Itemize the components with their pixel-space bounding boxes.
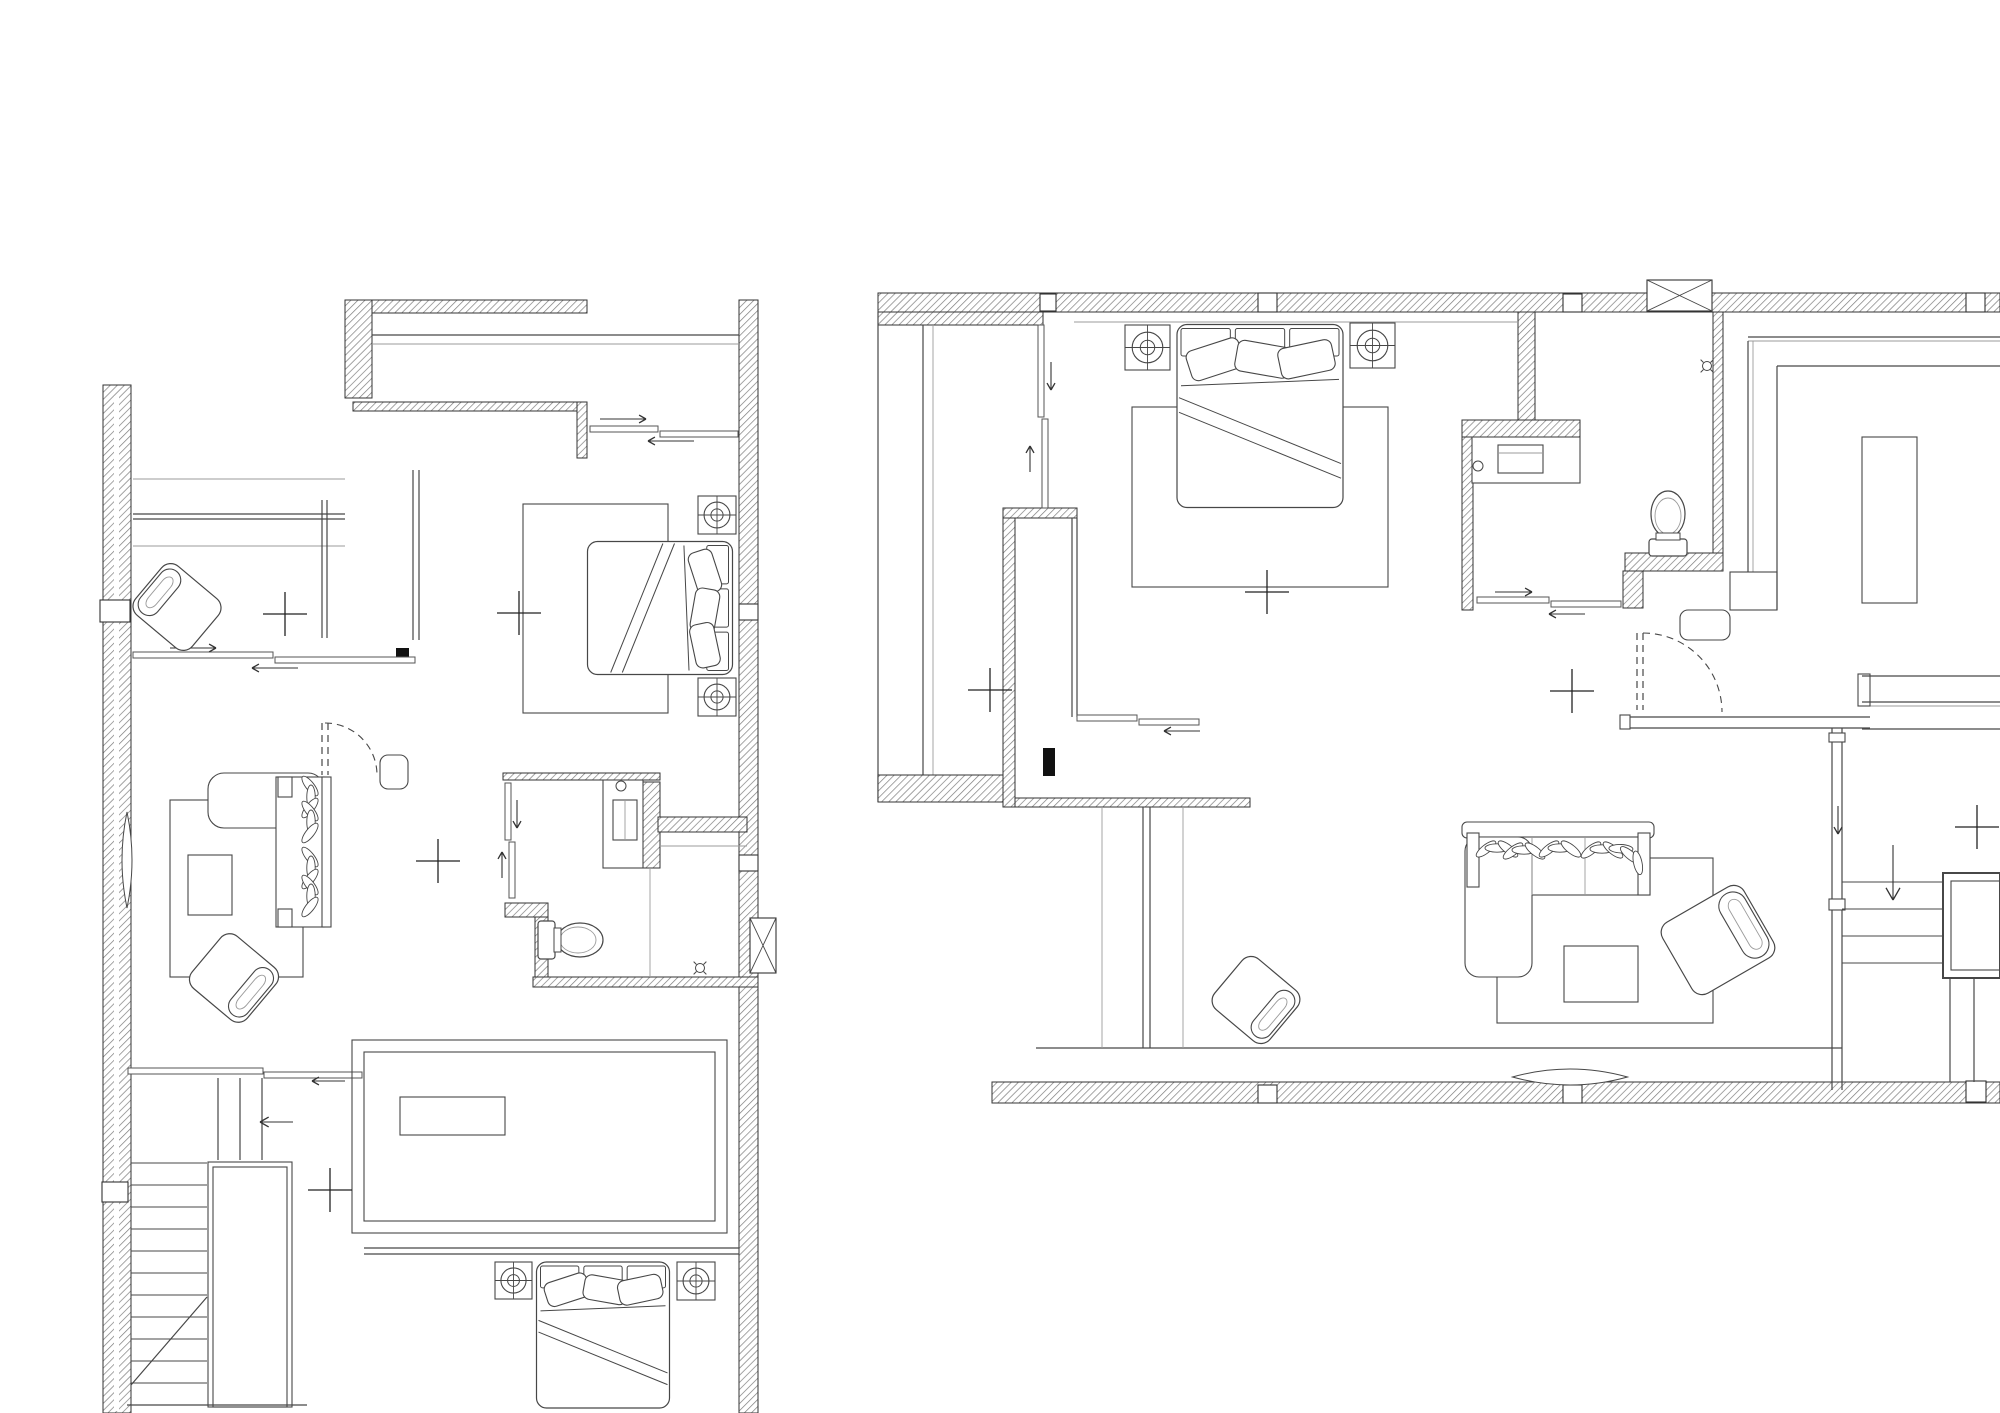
stair-direction-arrow [1893, 888, 1900, 900]
column-break [1966, 1081, 1986, 1102]
column-break [739, 604, 758, 620]
door-direction-arrow [1549, 610, 1556, 614]
toilet-tank [538, 921, 555, 959]
left-unit-floor-plan [100, 300, 776, 1413]
shower-head [1703, 362, 1712, 371]
stair-break-line [131, 1297, 207, 1385]
door-direction-arrow [1164, 727, 1171, 731]
door-direction-arrow [502, 852, 506, 859]
bathroom-mid-wall [642, 782, 660, 868]
stair-direction-arrow [1838, 827, 1842, 834]
double-bed [537, 1262, 670, 1408]
door-direction-arrow [1026, 446, 1030, 453]
door-direction-arrow [513, 821, 517, 828]
sliding-door-panel [509, 842, 515, 898]
column-break [1966, 293, 1985, 312]
double-bed [1177, 325, 1343, 508]
stair-direction-arrow [1834, 827, 1838, 834]
sliding-door-panel [264, 1072, 362, 1078]
wall-stub [1043, 748, 1055, 776]
bathroom-wall-column [1518, 312, 1535, 420]
door-direction-arrow [498, 852, 502, 859]
column-break [1040, 294, 1056, 311]
toilet-base [1656, 533, 1680, 540]
speaker-symbol [1125, 325, 1170, 370]
closet-wall [1003, 508, 1015, 807]
bathroom-wall-right [1713, 312, 1723, 555]
speaker-symbol [698, 496, 736, 534]
door-direction-arrow [1164, 731, 1171, 735]
door-mat [1680, 610, 1730, 640]
counter-cap [1858, 674, 1870, 706]
duct-shaft [750, 918, 776, 973]
door-direction-arrow [1525, 588, 1532, 592]
floor-drain [694, 972, 697, 975]
hall-wall [1015, 798, 1250, 807]
stairwell-inner [213, 1167, 287, 1407]
door-direction-arrow [648, 441, 655, 445]
door-direction-arrow [1051, 383, 1055, 390]
coffee-table [188, 855, 232, 915]
toilet-tank [1649, 539, 1687, 556]
sliding-door-panel [1038, 325, 1044, 417]
bathroom-bottom-wall [533, 977, 758, 987]
door-direction-arrow [648, 437, 655, 441]
door-direction-arrow [252, 664, 259, 668]
door-direction-arrow [1030, 446, 1034, 453]
lounge-chair [1207, 952, 1305, 1049]
sliding-door-panel [1139, 719, 1199, 725]
door-direction-arrow [1525, 592, 1532, 596]
column-break [739, 855, 758, 871]
floor-drain [696, 964, 705, 973]
floor-plan-document [0, 0, 2000, 1413]
door-swing-arc [325, 723, 377, 775]
top-exterior-wall [345, 300, 587, 313]
partition-joint [1829, 899, 1845, 910]
door-direction-arrow [1549, 614, 1556, 618]
speaker-symbol [698, 678, 736, 716]
door-direction-arrow [517, 821, 521, 828]
sofa-back [1462, 822, 1654, 838]
floor-drain [694, 962, 697, 965]
sliding-door-panel [128, 1068, 263, 1074]
shower-head [1701, 360, 1704, 363]
sliding-door-panel [1077, 715, 1137, 721]
step-notch [1620, 715, 1630, 729]
floor-drain [694, 962, 707, 975]
sofa-armrest [1467, 833, 1479, 887]
bathroom-top-wall [503, 773, 660, 780]
bathroom-wall-stub [1623, 571, 1643, 608]
door-direction-arrow [209, 648, 216, 652]
entry-wall-column [345, 300, 372, 398]
faucet [1473, 461, 1483, 471]
bathroom-right-wall [658, 817, 747, 832]
speaker-symbol [495, 1262, 532, 1299]
bedroom-partition-wall [353, 402, 578, 411]
door-direction-arrow [1047, 383, 1051, 390]
toilet [1649, 491, 1687, 556]
shower-head [1701, 370, 1704, 373]
closet-wall-cap [1003, 508, 1077, 518]
sofa-armrest [278, 909, 292, 927]
door-swing-arc [1643, 633, 1722, 712]
armchair [1657, 881, 1779, 999]
faucet [616, 781, 626, 791]
stair-direction-arrow [260, 1117, 269, 1122]
stair-direction-arrow [260, 1122, 269, 1127]
column-break [1563, 1085, 1582, 1103]
wall-cavity [114, 396, 119, 1411]
toilet-base [554, 928, 561, 952]
platform-rug-inner [364, 1052, 715, 1221]
sliding-door-panel [275, 657, 415, 663]
coffee-table [1564, 946, 1638, 1002]
bedroom-wall-cap [577, 402, 587, 458]
sofa-back [322, 777, 331, 927]
bathroom-wall-h [1462, 420, 1580, 437]
column-break [1563, 294, 1582, 312]
double-bed [588, 542, 733, 675]
floor-drain [704, 962, 707, 965]
toilet-nook-wall-h [505, 903, 548, 917]
bathroom-wall-left [1462, 437, 1473, 610]
sliding-door-panel [1477, 597, 1549, 603]
sliding-door-panel [1551, 601, 1621, 607]
door-direction-arrow [639, 415, 646, 419]
floor-plan-canvas [0, 0, 2000, 1413]
shower-head [1701, 360, 1714, 373]
lounge-chair [128, 559, 226, 656]
door-direction-arrow [252, 668, 259, 672]
door-direction-arrow [209, 644, 216, 648]
top-wall-thick [878, 312, 1043, 325]
kitchen-island [1862, 437, 1917, 603]
duct-shaft [1647, 280, 1712, 311]
speaker-symbol [1350, 323, 1395, 368]
toilet [538, 921, 603, 959]
sliding-door-panel [133, 652, 273, 658]
sliding-door-panel [590, 426, 658, 432]
column-break [102, 1182, 128, 1202]
step-block [1730, 572, 1777, 610]
lounge-chair [185, 929, 284, 1027]
sliding-door-panel [505, 783, 511, 840]
sofa-armrest [278, 777, 292, 797]
column-break [100, 600, 130, 622]
partition-joint [1829, 733, 1845, 742]
sliding-door-panel [660, 431, 738, 437]
bottom-exterior-wall [992, 1082, 2000, 1103]
vanity-counter [1472, 437, 1580, 483]
right-unit-floor-plan [878, 280, 2000, 1103]
door-direction-arrow [312, 1081, 319, 1085]
speaker-symbol [677, 1262, 715, 1300]
sliding-door-panel [1042, 419, 1048, 508]
column-break [1258, 293, 1277, 312]
left-wall-block [878, 775, 1003, 802]
stair-direction-arrow [1886, 888, 1893, 900]
stairwell [208, 1162, 292, 1407]
platform-rug [352, 1040, 727, 1233]
fireplace-inner [1951, 881, 2000, 970]
door-mat [380, 755, 408, 789]
low-table [400, 1097, 505, 1135]
fireplace [1943, 873, 2000, 978]
door-direction-arrow [639, 419, 646, 423]
floor-drain [704, 972, 707, 975]
plan-root [100, 280, 2000, 1413]
column-break [1258, 1085, 1277, 1103]
